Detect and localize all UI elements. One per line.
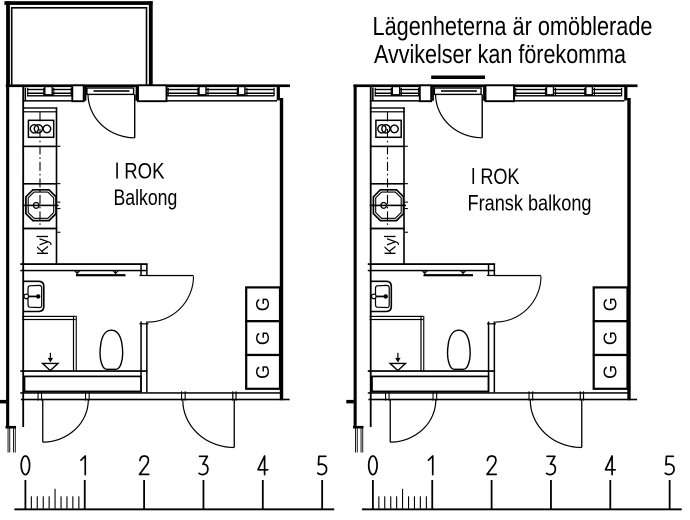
svg-text:l ROK: l ROK bbox=[115, 158, 165, 183]
svg-text:l ROK: l ROK bbox=[471, 164, 519, 189]
svg-text:Lägenheterna är omöblerade: Lägenheterna är omöblerade bbox=[373, 13, 653, 41]
svg-text:Balkong: Balkong bbox=[114, 185, 178, 210]
svg-text:Fransk balkong: Fransk balkong bbox=[468, 191, 592, 216]
svg-text:Avvikelser kan förekomma: Avvikelser kan förekomma bbox=[374, 41, 627, 69]
